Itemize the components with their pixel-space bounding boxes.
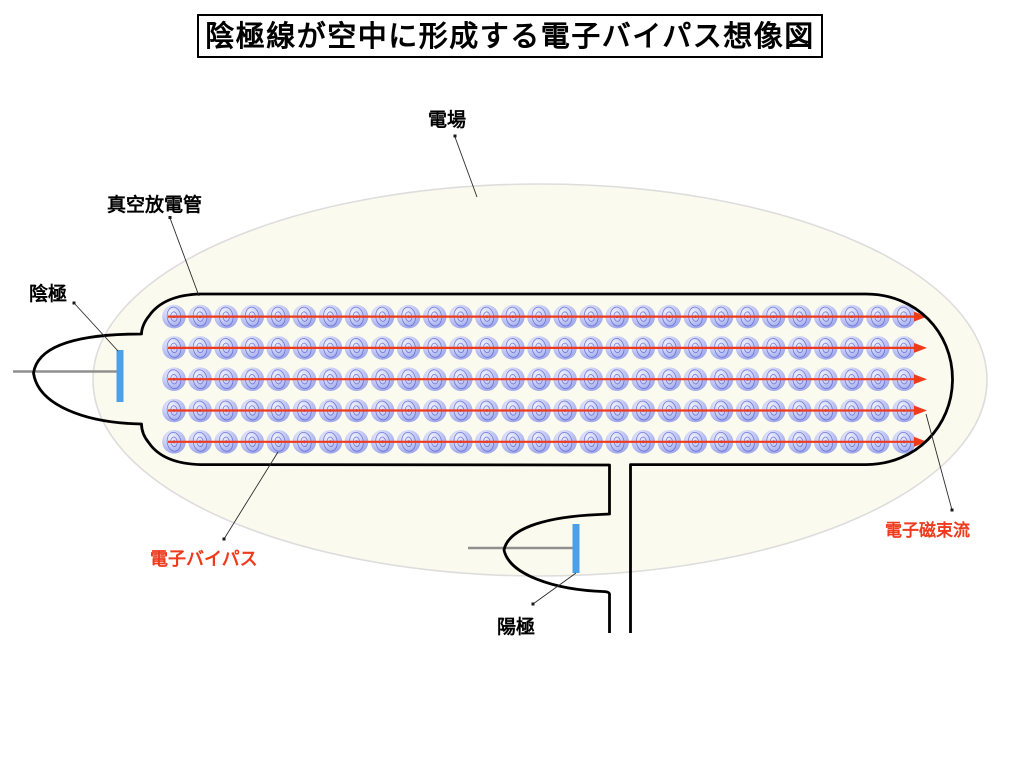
- cathode-ray-diagram: 電場 真空放電管 陰極 電子バイパス 電子磁束流 陽極 陰極線が空中に形成する電…: [0, 0, 1024, 768]
- tube-label: 真空放電管: [107, 193, 202, 216]
- bypass-label: 電子バイパス: [150, 549, 258, 569]
- cathode-electrode: [117, 350, 124, 402]
- anode-label: 陽極: [497, 615, 535, 638]
- flux-label: 電子磁束流: [885, 520, 970, 540]
- cathode-leader-dot: [73, 302, 76, 305]
- field-leader-dot: [454, 135, 457, 138]
- anode-electrode: [573, 524, 580, 573]
- cathode-label: 陰極: [29, 282, 67, 305]
- diagram-canvas: 電場 真空放電管 陰極 電子バイパス 電子磁束流 陽極 陰極線が空中に形成する電…: [0, 0, 1024, 768]
- anode-leader-dot: [532, 603, 535, 606]
- tube-leader-dot: [169, 216, 172, 219]
- bypass-leader-dot: [223, 538, 226, 541]
- flux-leader-dot: [951, 509, 954, 512]
- field-label: 電場: [428, 109, 466, 131]
- page-title: 陰極線が空中に形成する電子バイパス想像図: [205, 19, 814, 53]
